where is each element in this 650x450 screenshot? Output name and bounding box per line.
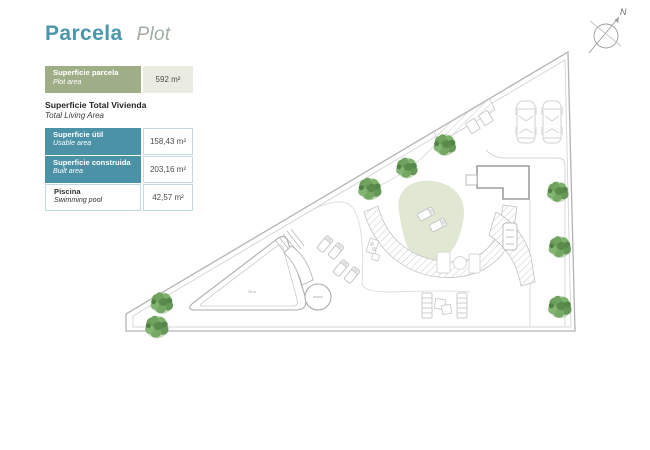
built-area-row: Superficie construida Built area 203,16 …: [45, 156, 195, 183]
compass-icon: N: [589, 7, 627, 53]
plot-area-value: 592 m²: [143, 66, 193, 93]
building: [466, 166, 529, 199]
built-area-value: 203,16 m²: [143, 156, 193, 183]
pool-area-value: 42,57 m²: [143, 184, 193, 211]
swimming-pool: 25 m: [190, 229, 313, 310]
usable-area-row: Superficie útil Usable area 158,43 m²: [45, 128, 195, 155]
usable-area-value: 158,43 m²: [143, 128, 193, 155]
plot-area-row: Superficie parcela Plot area 592 m²: [45, 66, 195, 93]
usable-area-label: Superficie útil Usable area: [45, 128, 141, 155]
area-legend: Superficie parcela Plot area 592 m² Supe…: [45, 66, 195, 212]
title-es: Parcela: [45, 22, 123, 45]
pool-loungers: [317, 235, 360, 283]
title-en: Plot: [137, 24, 171, 45]
bbq: [366, 238, 380, 261]
pool-note: 25 m: [248, 290, 256, 294]
page-title: ParcelaPlot: [45, 22, 170, 46]
brochure-page: 25 m: [0, 0, 650, 450]
pool-area-label: Piscina Swimming pool: [45, 184, 141, 211]
dining-table: [503, 223, 517, 250]
bottom-furniture: [422, 293, 467, 318]
living-area-section-title: Superficie Total Vivienda Total Living A…: [45, 100, 195, 121]
compass-label: N: [620, 7, 627, 17]
spa: [305, 284, 331, 310]
built-area-label: Superficie construida Built area: [45, 156, 141, 183]
pool-area-row: Piscina Swimming pool 42,57 m²: [45, 184, 195, 211]
plot-area-label: Superficie parcela Plot area: [45, 66, 141, 93]
car-icon: [515, 101, 563, 143]
